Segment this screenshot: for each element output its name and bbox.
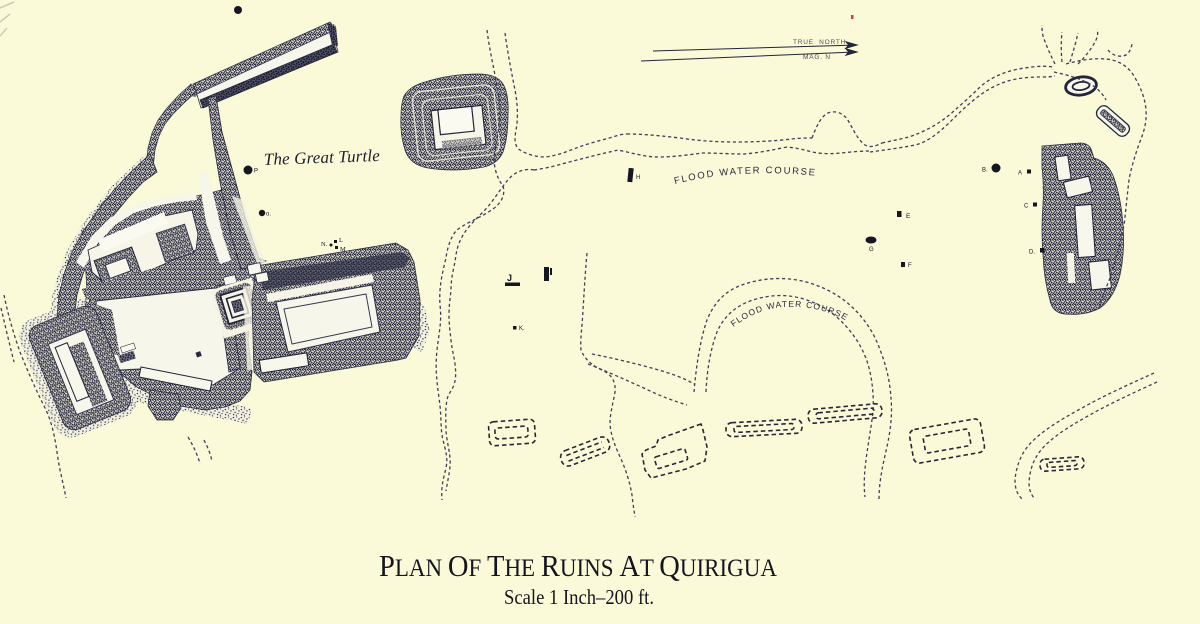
svg-text:E: E <box>906 213 911 220</box>
svg-text:The Great Turtle: The Great Turtle <box>263 146 380 169</box>
svg-text:G: G <box>869 247 874 253</box>
svg-text:TRUE NORTH: TRUE NORTH <box>793 39 846 46</box>
svg-text:F: F <box>908 263 912 269</box>
svg-text:H: H <box>636 175 640 181</box>
svg-text:K.: K. <box>519 326 525 332</box>
svg-text:A: A <box>1018 171 1022 177</box>
svg-text:Scale 1 Inch–200 ft.: Scale 1 Inch–200 ft. <box>504 585 654 609</box>
svg-text:N.: N. <box>321 241 328 248</box>
svg-text:MAG. N: MAG. N <box>803 54 831 61</box>
svg-text:B.: B. <box>982 168 988 174</box>
svg-text:M: M <box>340 246 346 253</box>
svg-text:D.: D. <box>1029 250 1035 256</box>
svg-text:o.: o. <box>266 212 271 218</box>
svg-text:L: L <box>339 237 343 244</box>
svg-text:P: P <box>254 169 258 175</box>
svg-text:J: J <box>507 273 512 283</box>
svg-text:C: C <box>1024 204 1029 210</box>
